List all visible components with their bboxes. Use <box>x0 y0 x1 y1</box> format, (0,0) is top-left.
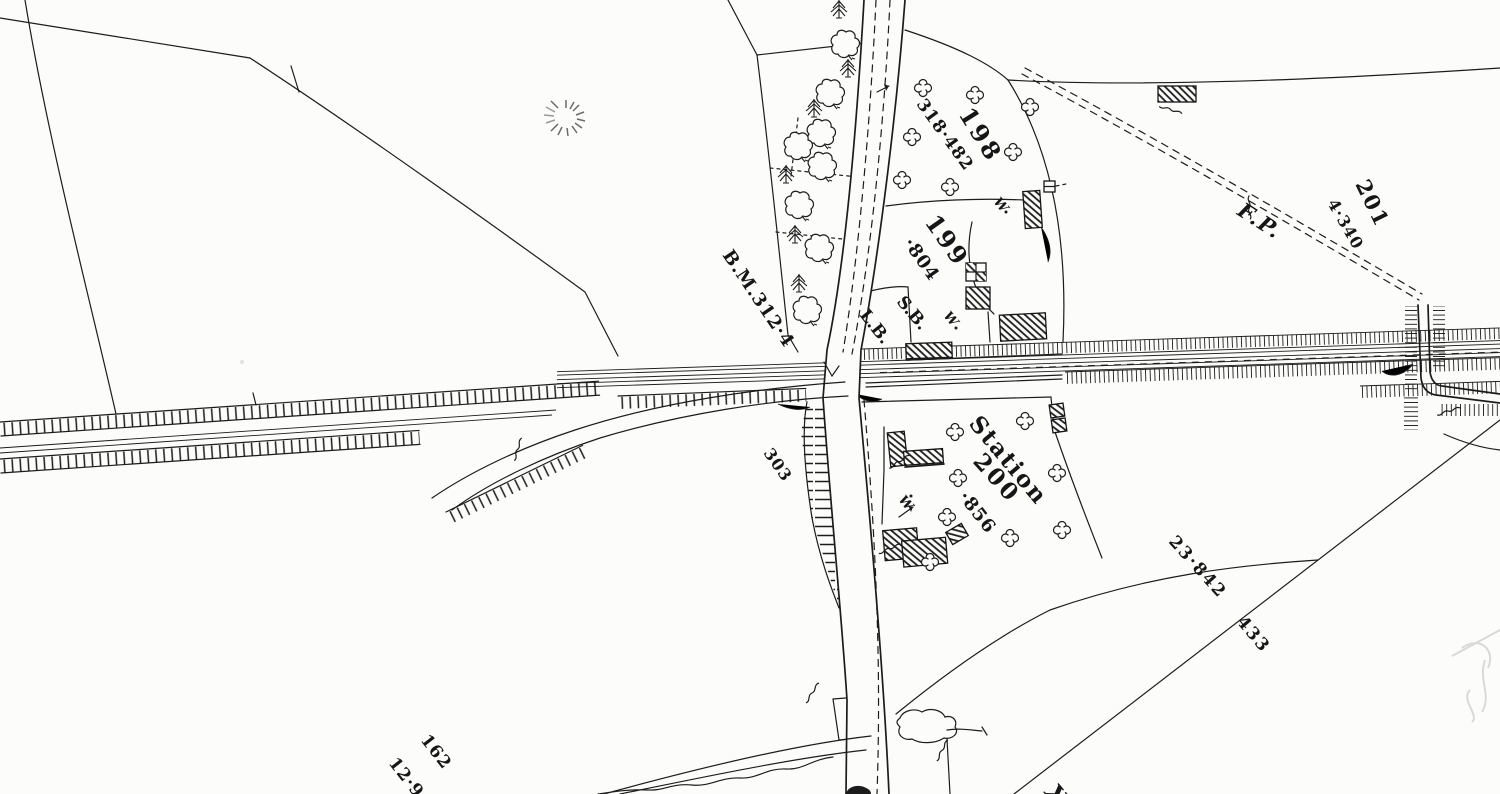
map-canvas: B.M.312·4 318·482 198 199 ·804 S.B. L.B.… <box>0 0 1500 794</box>
glasshouse <box>966 263 986 281</box>
building-hatched <box>1158 86 1196 102</box>
signal-box-building <box>906 342 952 359</box>
building-hatched <box>1023 190 1043 228</box>
building-hatched <box>999 313 1046 341</box>
well-dot <box>955 327 958 330</box>
station-building <box>904 449 944 466</box>
building-hatched <box>966 287 990 309</box>
os-map-screenshot: B.M.312·4 318·482 198 199 ·804 S.B. L.B.… <box>0 0 1500 794</box>
